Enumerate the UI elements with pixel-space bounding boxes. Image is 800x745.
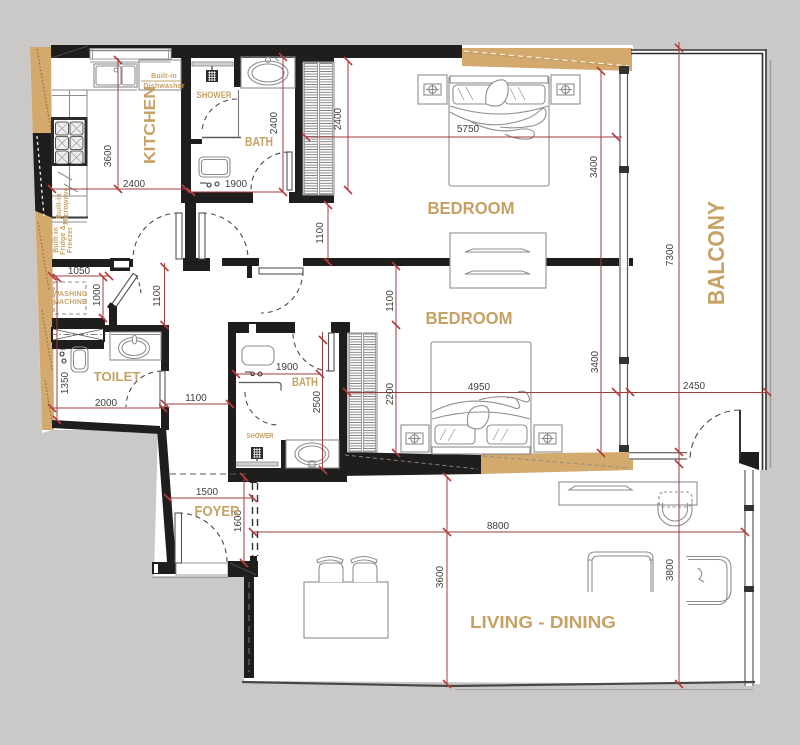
svg-text:TOILET: TOILET [94,369,141,384]
svg-text:1000: 1000 [92,283,103,306]
svg-text:1500: 1500 [196,487,219,498]
svg-text:FOYER: FOYER [195,504,240,520]
svg-text:2400: 2400 [269,111,280,134]
svg-text:WASHING: WASHING [53,291,88,298]
svg-text:3400: 3400 [590,350,601,373]
svg-text:SHOWER: SHOWER [197,90,232,100]
svg-text:8800: 8800 [487,521,510,532]
svg-text:3600: 3600 [435,565,446,588]
svg-text:Built-in: Built-in [53,227,60,253]
svg-text:2200: 2200 [385,382,396,405]
svg-text:1900: 1900 [225,179,248,190]
svg-text:7300: 7300 [665,243,676,266]
svg-text:1350: 1350 [60,371,71,394]
svg-text:BEDROOM: BEDROOM [426,308,513,328]
svg-text:4950: 4950 [468,382,491,393]
svg-text:BATH: BATH [245,135,273,149]
svg-text:Microwave: Microwave [63,187,70,225]
svg-text:LIVING - DINING: LIVING - DINING [470,612,616,632]
svg-text:1100: 1100 [152,285,163,307]
svg-text:1900: 1900 [276,362,299,373]
svg-text:2000: 2000 [95,398,118,409]
svg-text:5750: 5750 [457,124,480,135]
svg-text:1100: 1100 [385,290,396,312]
svg-text:BATH: BATH [292,375,318,389]
svg-text:1100: 1100 [315,222,326,244]
svg-text:1100: 1100 [185,393,207,404]
svg-text:Built-in: Built-in [56,193,63,219]
svg-text:2400: 2400 [123,179,146,190]
svg-text:2400: 2400 [333,107,344,130]
svg-text:3400: 3400 [589,155,600,178]
svg-text:Fridge &: Fridge & [60,225,67,255]
svg-text:Freezer: Freezer [67,227,74,253]
svg-text:KITCHEN: KITCHEN [142,86,159,164]
svg-text:BEDROOM: BEDROOM [428,198,515,218]
svg-text:2500: 2500 [312,390,323,413]
svg-text:3800: 3800 [665,558,676,581]
svg-text:Built-in: Built-in [151,73,177,80]
svg-text:3600: 3600 [103,144,114,167]
svg-text:SHOWER: SHOWER [247,433,274,440]
svg-text:BALCONY: BALCONY [703,201,729,305]
svg-text:2450: 2450 [683,381,706,392]
svg-text:MACHINE: MACHINE [53,299,87,306]
svg-text:1050: 1050 [68,266,91,277]
svg-text:Dishwasher: Dishwasher [143,83,184,90]
